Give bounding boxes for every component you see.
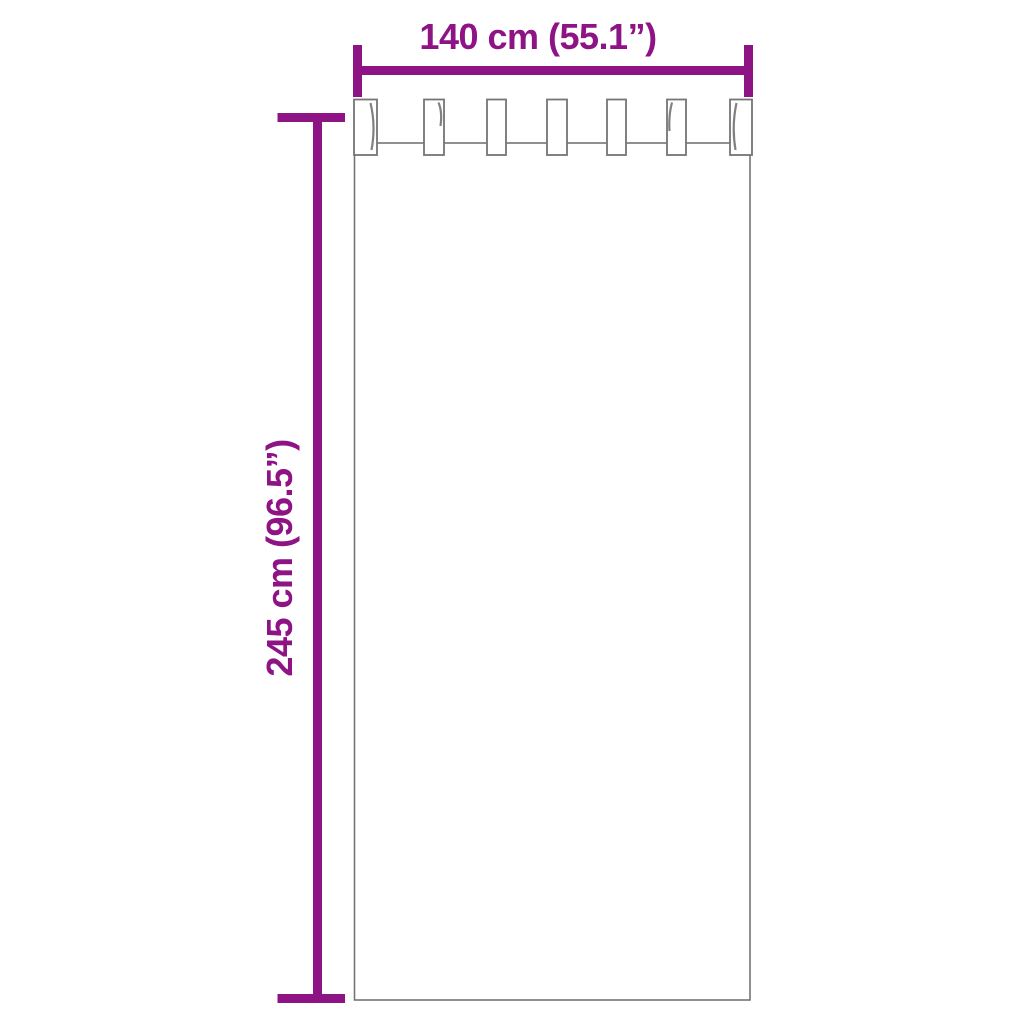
curtain-body: [355, 143, 751, 1000]
height-dimension-label: 245 cm (96.5”): [257, 308, 303, 808]
width-dimension-bar: [355, 66, 750, 75]
curtain-drawing: [0, 0, 1024, 1024]
curtain-tab: [547, 100, 567, 156]
height-dimension-bar: [313, 117, 322, 998]
width-dimension-label: 140 cm (55.1”): [288, 14, 788, 60]
height-dimension-bottom-cap: [278, 994, 346, 1003]
curtain-outline: [354, 100, 752, 1001]
dimension-diagram: 140 cm (55.1”) 245 cm (96.5”): [0, 0, 1024, 1024]
height-dimension-top-cap: [278, 113, 346, 122]
curtain-tab: [607, 100, 626, 156]
curtain-tab: [487, 100, 506, 156]
